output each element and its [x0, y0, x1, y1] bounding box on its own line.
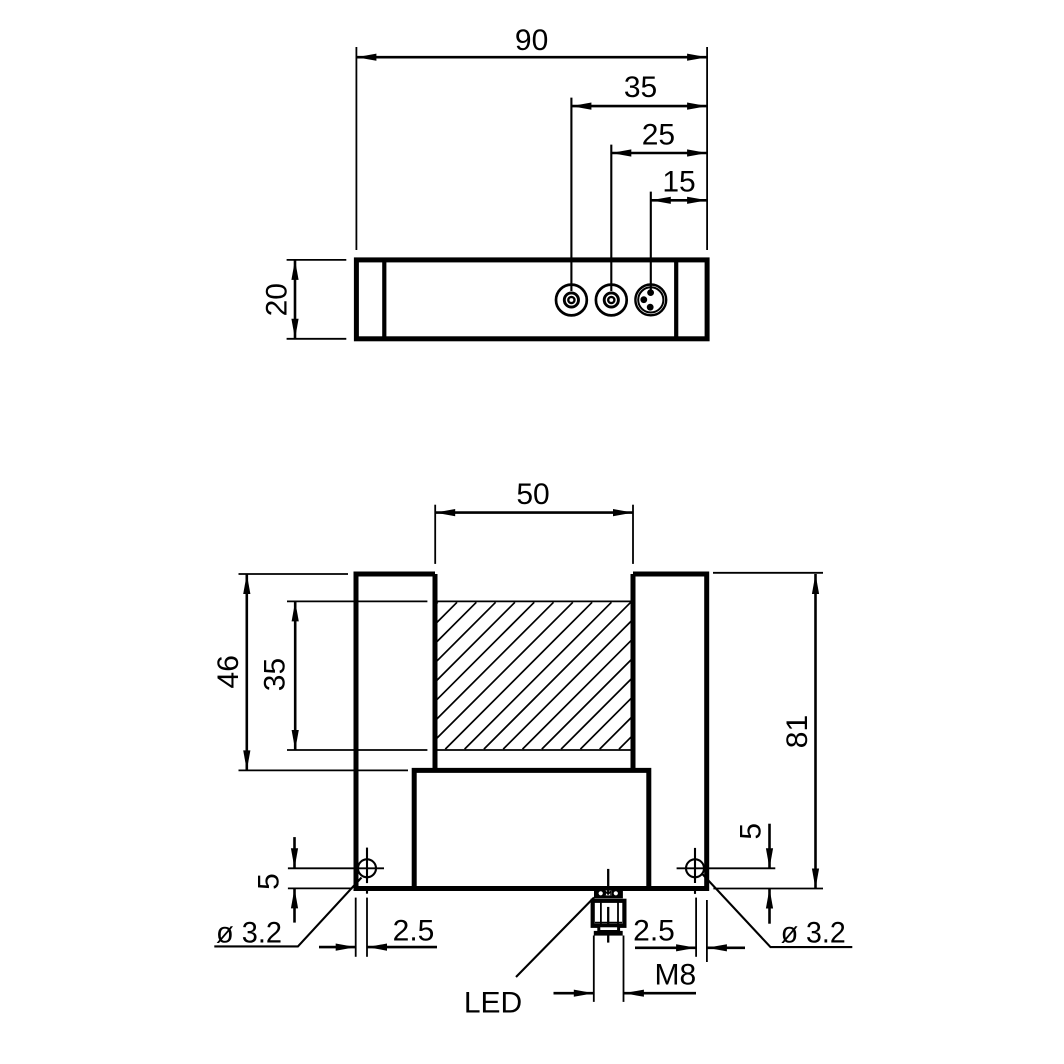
svg-text:35: 35: [259, 658, 292, 691]
svg-text:2.5: 2.5: [633, 915, 675, 948]
svg-text:35: 35: [624, 71, 657, 104]
svg-text:LED: LED: [464, 987, 522, 1020]
svg-text:46: 46: [212, 655, 245, 688]
svg-text:5: 5: [253, 873, 286, 890]
svg-text:ø 3.2: ø 3.2: [216, 917, 282, 950]
svg-text:ø 3.2: ø 3.2: [781, 917, 846, 950]
svg-text:81: 81: [781, 715, 814, 748]
svg-text:M8: M8: [655, 959, 697, 992]
svg-text:20: 20: [261, 283, 294, 316]
svg-text:5: 5: [735, 823, 768, 840]
svg-text:25: 25: [642, 119, 675, 152]
svg-text:90: 90: [515, 24, 548, 57]
svg-text:2.5: 2.5: [393, 915, 435, 948]
svg-text:15: 15: [662, 166, 695, 199]
svg-text:50: 50: [516, 478, 549, 511]
